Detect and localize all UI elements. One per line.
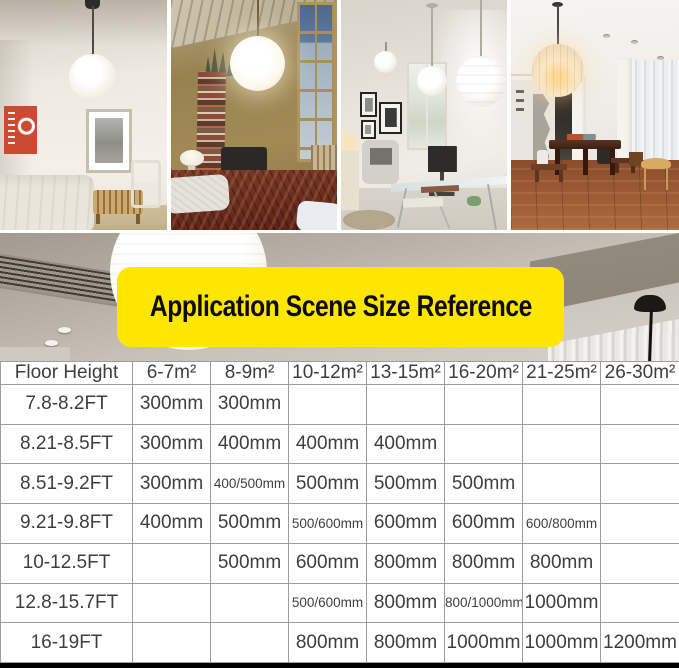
size-cell: 500/600mm [289, 504, 367, 544]
pendant-cord [431, 6, 433, 68]
dining-table [549, 140, 621, 149]
row-label: 9.21-9.8FT [1, 504, 133, 544]
size-cell: 600mm [289, 543, 367, 583]
scene-photo-home-office [341, 0, 507, 230]
col-header-floor-height: Floor Height [1, 362, 133, 385]
row-label: 8.51-9.2FT [1, 464, 133, 504]
paper-lantern [69, 54, 116, 100]
size-cell [601, 385, 679, 425]
bench-legs [535, 170, 563, 182]
size-reference-table: Floor Height 6-7m² 8-9m² 10-12m² 13-15m²… [0, 361, 679, 663]
col-header-21-25m2: 21-25m² [523, 362, 601, 385]
side-chair [131, 160, 161, 208]
size-cell [601, 424, 679, 464]
banner-title: Application Scene Size Reference [150, 290, 532, 324]
size-cell [523, 385, 601, 425]
col-header-16-20m2: 16-20m² [445, 362, 523, 385]
size-cell [133, 623, 211, 663]
size-cell: 300mm [133, 385, 211, 425]
cabinet [341, 150, 359, 210]
round-rug [343, 210, 395, 230]
ac-vent-grille [0, 253, 122, 306]
size-cell: 1000mm [523, 583, 601, 623]
size-cell [523, 464, 601, 504]
table-row: 8.21-8.5FT 300mm 400mm 400mm 400mm [1, 424, 679, 464]
pendant-cord [557, 4, 559, 46]
table-lamp [180, 150, 204, 166]
table-row: 10-12.5FT 500mm 600mm 800mm 800mm 800mm [1, 543, 679, 583]
size-cell: 800mm [367, 583, 445, 623]
table-header-row: Floor Height 6-7m² 8-9m² 10-12m² 13-15m²… [1, 362, 679, 385]
gallery-frame [361, 120, 376, 139]
window [297, 2, 337, 162]
scene-photo-living-room [0, 0, 167, 230]
col-header-26-30m2: 26-30m² [601, 362, 679, 385]
col-header-13-15m2: 13-15m² [367, 362, 445, 385]
title-banner: Application Scene Size Reference [117, 267, 564, 347]
col-header-6-7m2: 6-7m² [133, 362, 211, 385]
col-header-10-12m2: 10-12m² [289, 362, 367, 385]
size-cell [523, 424, 601, 464]
row-label: 10-12.5FT [1, 543, 133, 583]
paper-lantern-small [374, 51, 397, 73]
table-legs [96, 214, 140, 224]
size-cell [601, 583, 679, 623]
size-cell: 1000mm [445, 623, 523, 663]
size-cell [367, 385, 445, 425]
gallery-frame [379, 102, 402, 134]
pillow [296, 200, 337, 230]
pendant-cord [480, 0, 482, 58]
size-cell: 500mm [445, 464, 523, 504]
size-cell: 500mm [211, 543, 289, 583]
table-items [567, 134, 597, 140]
size-cell: 800mm [367, 623, 445, 663]
paper-lantern [230, 36, 285, 91]
wishbone-chair-legs [644, 168, 668, 190]
size-cell: 500/600mm [289, 583, 367, 623]
size-cell: 600mm [367, 504, 445, 544]
size-cell: 600mm [445, 504, 523, 544]
table-row: 9.21-9.8FT 400mm 500mm 500/600mm 600mm 6… [1, 504, 679, 544]
scene-photo-dining-room [511, 0, 679, 230]
size-cell [445, 385, 523, 425]
size-cell: 400/500mm [211, 464, 289, 504]
paper-lantern-large [456, 56, 506, 107]
downlight [45, 340, 58, 346]
size-cell [601, 464, 679, 504]
row-label: 8.21-8.5FT [1, 424, 133, 464]
size-cell: 300mm [211, 385, 289, 425]
bed-sheet [171, 174, 230, 214]
row-label: 12.8-15.7FT [1, 583, 133, 623]
gallery-frame [360, 92, 377, 117]
recessed-light [603, 34, 610, 38]
size-cell: 400mm [133, 504, 211, 544]
armchair [362, 140, 399, 184]
product-infographic: Application Scene Size Reference Floor H… [0, 0, 679, 668]
size-cell [289, 385, 367, 425]
size-cell: 800mm [523, 543, 601, 583]
table-row: 16-19FT 800mm 800mm 1000mm 1000mm 1200mm [1, 623, 679, 663]
size-cell: 500mm [367, 464, 445, 504]
row-label: 7.8-8.2FT [1, 385, 133, 425]
size-cell: 1200mm [601, 623, 679, 663]
size-cell: 400mm [211, 424, 289, 464]
pendant-cord [257, 0, 259, 38]
scene-photo-bedroom [171, 0, 337, 230]
table-row: 8.51-9.2FT 300mm 400/500mm 500mm 500mm 5… [1, 464, 679, 504]
footer-bar [0, 663, 679, 668]
size-cell: 400mm [367, 424, 445, 464]
size-cell [445, 424, 523, 464]
red-poster [4, 106, 37, 154]
size-cell [601, 504, 679, 544]
size-cell: 500mm [211, 504, 289, 544]
size-cell: 400mm [289, 424, 367, 464]
size-cell: 800/1000mm [445, 583, 523, 623]
size-cell [133, 543, 211, 583]
downlight [58, 327, 71, 333]
size-cell: 500mm [289, 464, 367, 504]
col-header-8-9m2: 8-9m² [211, 362, 289, 385]
picture-frame [86, 109, 132, 173]
size-cell: 800mm [367, 543, 445, 583]
wall [0, 347, 70, 361]
curtains [548, 319, 679, 361]
table-row: 12.8-15.7FT 500/600mm 800mm 800/1000mm 1… [1, 583, 679, 623]
size-cell: 800mm [289, 623, 367, 663]
table-row: 7.8-8.2FT 300mm 300mm [1, 385, 679, 425]
dining-table-legs [555, 149, 615, 175]
white-sofa [0, 175, 94, 230]
recessed-light [631, 40, 638, 44]
paper-lantern-lit [532, 44, 584, 97]
pendant-cord [92, 6, 94, 58]
wall-art [514, 88, 526, 114]
size-cell: 800mm [445, 543, 523, 583]
size-cell [211, 583, 289, 623]
size-cell: 300mm [133, 424, 211, 464]
size-cell [133, 583, 211, 623]
size-cell [211, 623, 289, 663]
green-cup [467, 196, 481, 206]
size-cell [601, 543, 679, 583]
size-cell: 300mm [133, 464, 211, 504]
size-cell: 1000mm [523, 623, 601, 663]
size-cell: 600/800mm [523, 504, 601, 544]
open-book [403, 197, 443, 207]
row-label: 16-19FT [1, 623, 133, 663]
paper-lantern-medium [417, 66, 447, 96]
